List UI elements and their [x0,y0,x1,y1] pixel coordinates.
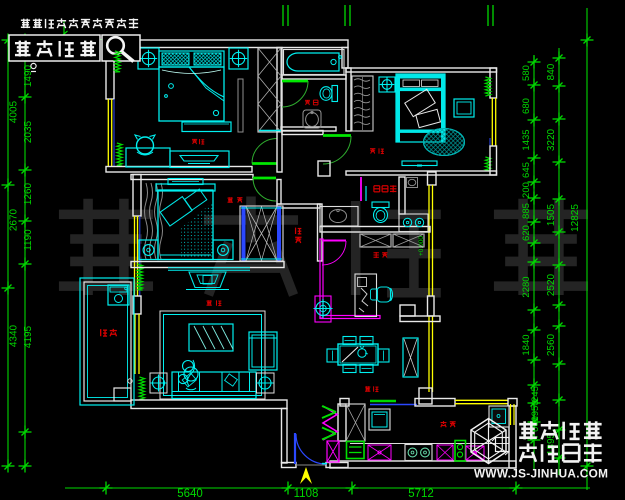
svg-text:1190: 1190 [23,229,34,251]
svg-text:620: 620 [521,225,532,241]
svg-text:4340: 4340 [9,324,20,347]
svg-text:1108: 1108 [294,488,319,500]
svg-text:2520: 2520 [546,273,557,296]
svg-text:1435: 1435 [521,129,532,150]
svg-text:3220: 3220 [546,128,557,151]
svg-text:WWW.JS-JINHUA.COM: WWW.JS-JINHUA.COM [474,467,608,481]
svg-text:2560: 2560 [546,333,557,356]
svg-text:1260: 1260 [23,182,34,205]
svg-text:245: 245 [530,386,541,402]
svg-text:1505: 1505 [546,203,557,226]
svg-text:580: 580 [521,65,532,81]
svg-text:5712: 5712 [408,488,434,500]
svg-text:200: 200 [521,182,532,198]
svg-text:12825: 12825 [570,204,581,232]
svg-text:840: 840 [546,63,557,80]
svg-text:4195: 4195 [23,325,34,348]
svg-text:2035: 2035 [23,120,34,143]
svg-text:885: 885 [521,203,532,219]
svg-text:4005: 4005 [9,100,20,123]
svg-text:1840: 1840 [521,334,532,355]
svg-text:2280: 2280 [521,276,532,297]
svg-text:680: 680 [521,98,532,114]
svg-text:2670: 2670 [9,208,20,231]
svg-text:645: 645 [521,162,532,178]
svg-text:5640: 5640 [177,488,203,500]
